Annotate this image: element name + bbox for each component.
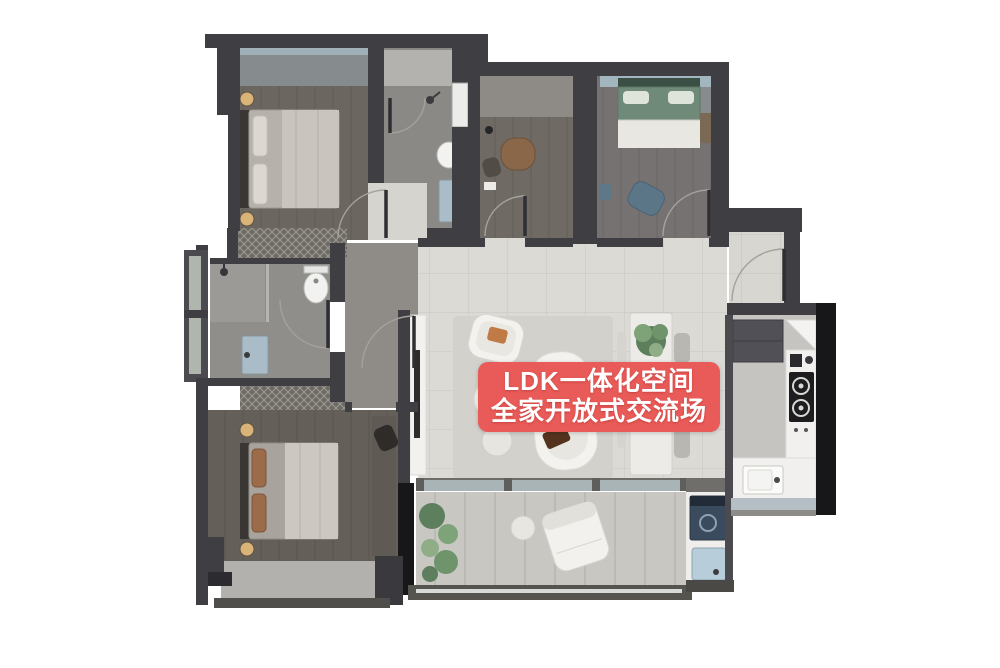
sliding-door-track bbox=[416, 478, 688, 491]
nightstand-lamp bbox=[240, 92, 254, 106]
bedroom3-bay-ledge bbox=[221, 561, 379, 598]
laundry-sink bbox=[692, 548, 726, 580]
ldk-banner: LDK一体化空间 全家开放式交流场 bbox=[478, 362, 720, 432]
washing-machine bbox=[690, 496, 726, 540]
wall-kitchen-right-black bbox=[816, 303, 836, 515]
nightstand-lamp bbox=[240, 423, 254, 437]
wall-left-thin bbox=[228, 113, 240, 231]
wall-bedroom3-bottom bbox=[214, 598, 390, 608]
bedroom2-dresser bbox=[700, 113, 712, 143]
bed-2 bbox=[618, 78, 700, 148]
kitchen-window bbox=[731, 498, 816, 510]
floor-plan-canvas: LDK一体化空间 全家开放式交流场 bbox=[0, 0, 1000, 668]
bed-1 bbox=[240, 110, 339, 208]
wall-entry-right bbox=[784, 232, 800, 305]
entry-floor-tiles bbox=[729, 232, 784, 310]
banner-line-2: 全家开放式交流场 bbox=[480, 396, 718, 426]
bay-window bbox=[184, 250, 208, 382]
bathroom2-shower-zone bbox=[210, 264, 265, 322]
wall-bedroom1-bath bbox=[368, 48, 384, 183]
wall-bedroom2-right bbox=[711, 62, 729, 244]
banner-line-1: LDK一体化空间 bbox=[480, 366, 718, 396]
bathroom1-window bbox=[452, 83, 468, 127]
wall-study-bedroom2 bbox=[573, 67, 597, 244]
kitchen-sink bbox=[743, 466, 783, 494]
faucet-icon bbox=[244, 352, 250, 358]
shower-glass bbox=[266, 264, 269, 322]
study-ledge bbox=[480, 76, 573, 117]
balcony-glass-railing bbox=[416, 589, 682, 593]
nightstand-lamp bbox=[240, 212, 254, 226]
kitchen-utensil bbox=[805, 356, 813, 364]
balcony-side-table bbox=[511, 516, 535, 540]
wall-left-thick bbox=[217, 35, 240, 115]
bedroom2-stool bbox=[599, 184, 611, 200]
bedroom1-window-glass bbox=[240, 48, 368, 55]
nightstand-lamp bbox=[240, 542, 254, 556]
wall-kitchen-left bbox=[725, 315, 733, 580]
bathroom1-vestibule-tile bbox=[368, 183, 427, 240]
wall-bath-study bbox=[468, 76, 480, 240]
toilet-2 bbox=[304, 266, 328, 303]
wall-entry-top bbox=[727, 208, 802, 232]
bed-3 bbox=[240, 443, 338, 539]
bathroom1-shower-zone bbox=[384, 50, 452, 86]
wall-top-a bbox=[205, 34, 470, 48]
kitchen-appliance bbox=[790, 354, 802, 367]
floor-plan-svg bbox=[0, 0, 1000, 668]
